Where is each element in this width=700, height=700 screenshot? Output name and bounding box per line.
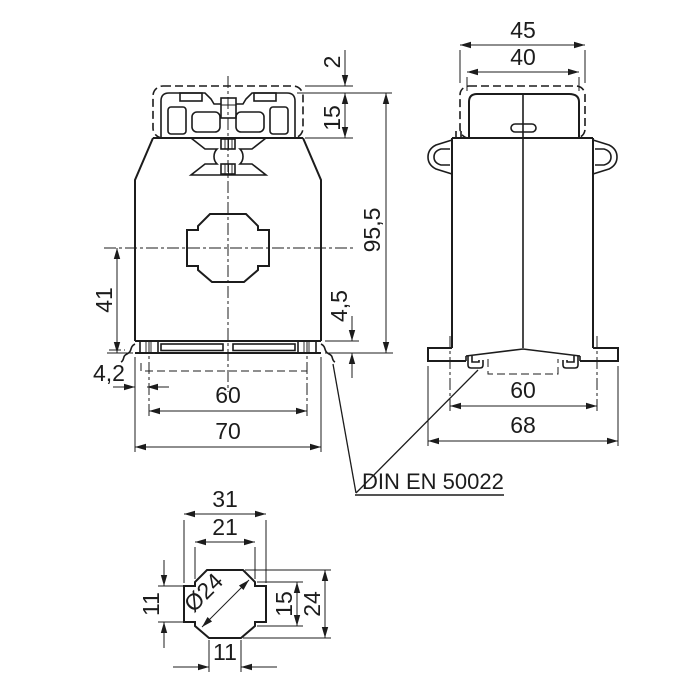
terminal-opening-4	[270, 107, 288, 134]
dim-rail-step: 4,5	[326, 290, 352, 322]
technical-drawing: 2 15 95,5 4,5 41 4,2 60 70	[0, 0, 700, 700]
technical-drawing-page: 2 15 95,5 4,5 41 4,2 60 70	[0, 0, 700, 700]
front-view-dimensions: 2 15 95,5 4,5 41 4,2 60 70	[91, 50, 393, 452]
dim-cover-offset: 2	[319, 56, 345, 69]
dim-cover-width: 45	[510, 17, 536, 43]
dim-window-arm-width: 11	[213, 639, 237, 665]
dim-terminal-height: 15	[319, 105, 345, 131]
side-view: 45 40 60 68	[428, 17, 618, 446]
terminal-opening-2	[192, 112, 220, 132]
dim-overall-width: 70	[215, 418, 241, 444]
dim-window-inner-width: 21	[212, 514, 238, 540]
din-rail-callout: DIN EN 50022	[333, 364, 504, 495]
rail-slot-left	[161, 344, 223, 351]
dim-center-to-base: 41	[91, 287, 117, 313]
leader-line-front	[333, 364, 356, 493]
window-detail-dimensions: 31 21 Ø24 11 15 24 11	[138, 486, 331, 672]
din-rail-dashed-side	[488, 359, 558, 374]
dim-window-arm-height: 11	[138, 592, 164, 616]
terminal-opening-1	[168, 107, 186, 134]
rail-slot-right	[233, 344, 295, 351]
dim-rail-span-front: 60	[215, 382, 241, 408]
dim-overall-height: 95,5	[359, 208, 385, 253]
din-rail-label: DIN EN 50022	[362, 469, 504, 494]
terminal-opening-3	[236, 112, 264, 132]
mounting-foot	[109, 341, 335, 371]
dim-window-outer-width: 31	[212, 486, 238, 512]
dim-base-width: 68	[510, 412, 536, 438]
dim-top-width: 40	[510, 44, 536, 70]
front-view: 2 15 95,5 4,5 41 4,2 60 70	[91, 50, 393, 452]
terminal-notch-left	[180, 93, 202, 101]
wing-left	[428, 140, 452, 174]
dim-window-side-height: 15	[271, 591, 297, 617]
dim-fixing-span-side: 60	[510, 377, 536, 403]
window-detail-view: 31 21 Ø24 11 15 24 11	[138, 486, 331, 672]
dim-clip-offset: 4,2	[93, 360, 125, 386]
wing-right	[593, 140, 617, 174]
din-rail-dashed-front	[141, 363, 307, 371]
dim-window-bore: Ø24	[179, 568, 228, 617]
dim-window-outer-height: 24	[299, 591, 325, 617]
terminal-notch-right	[254, 93, 276, 101]
